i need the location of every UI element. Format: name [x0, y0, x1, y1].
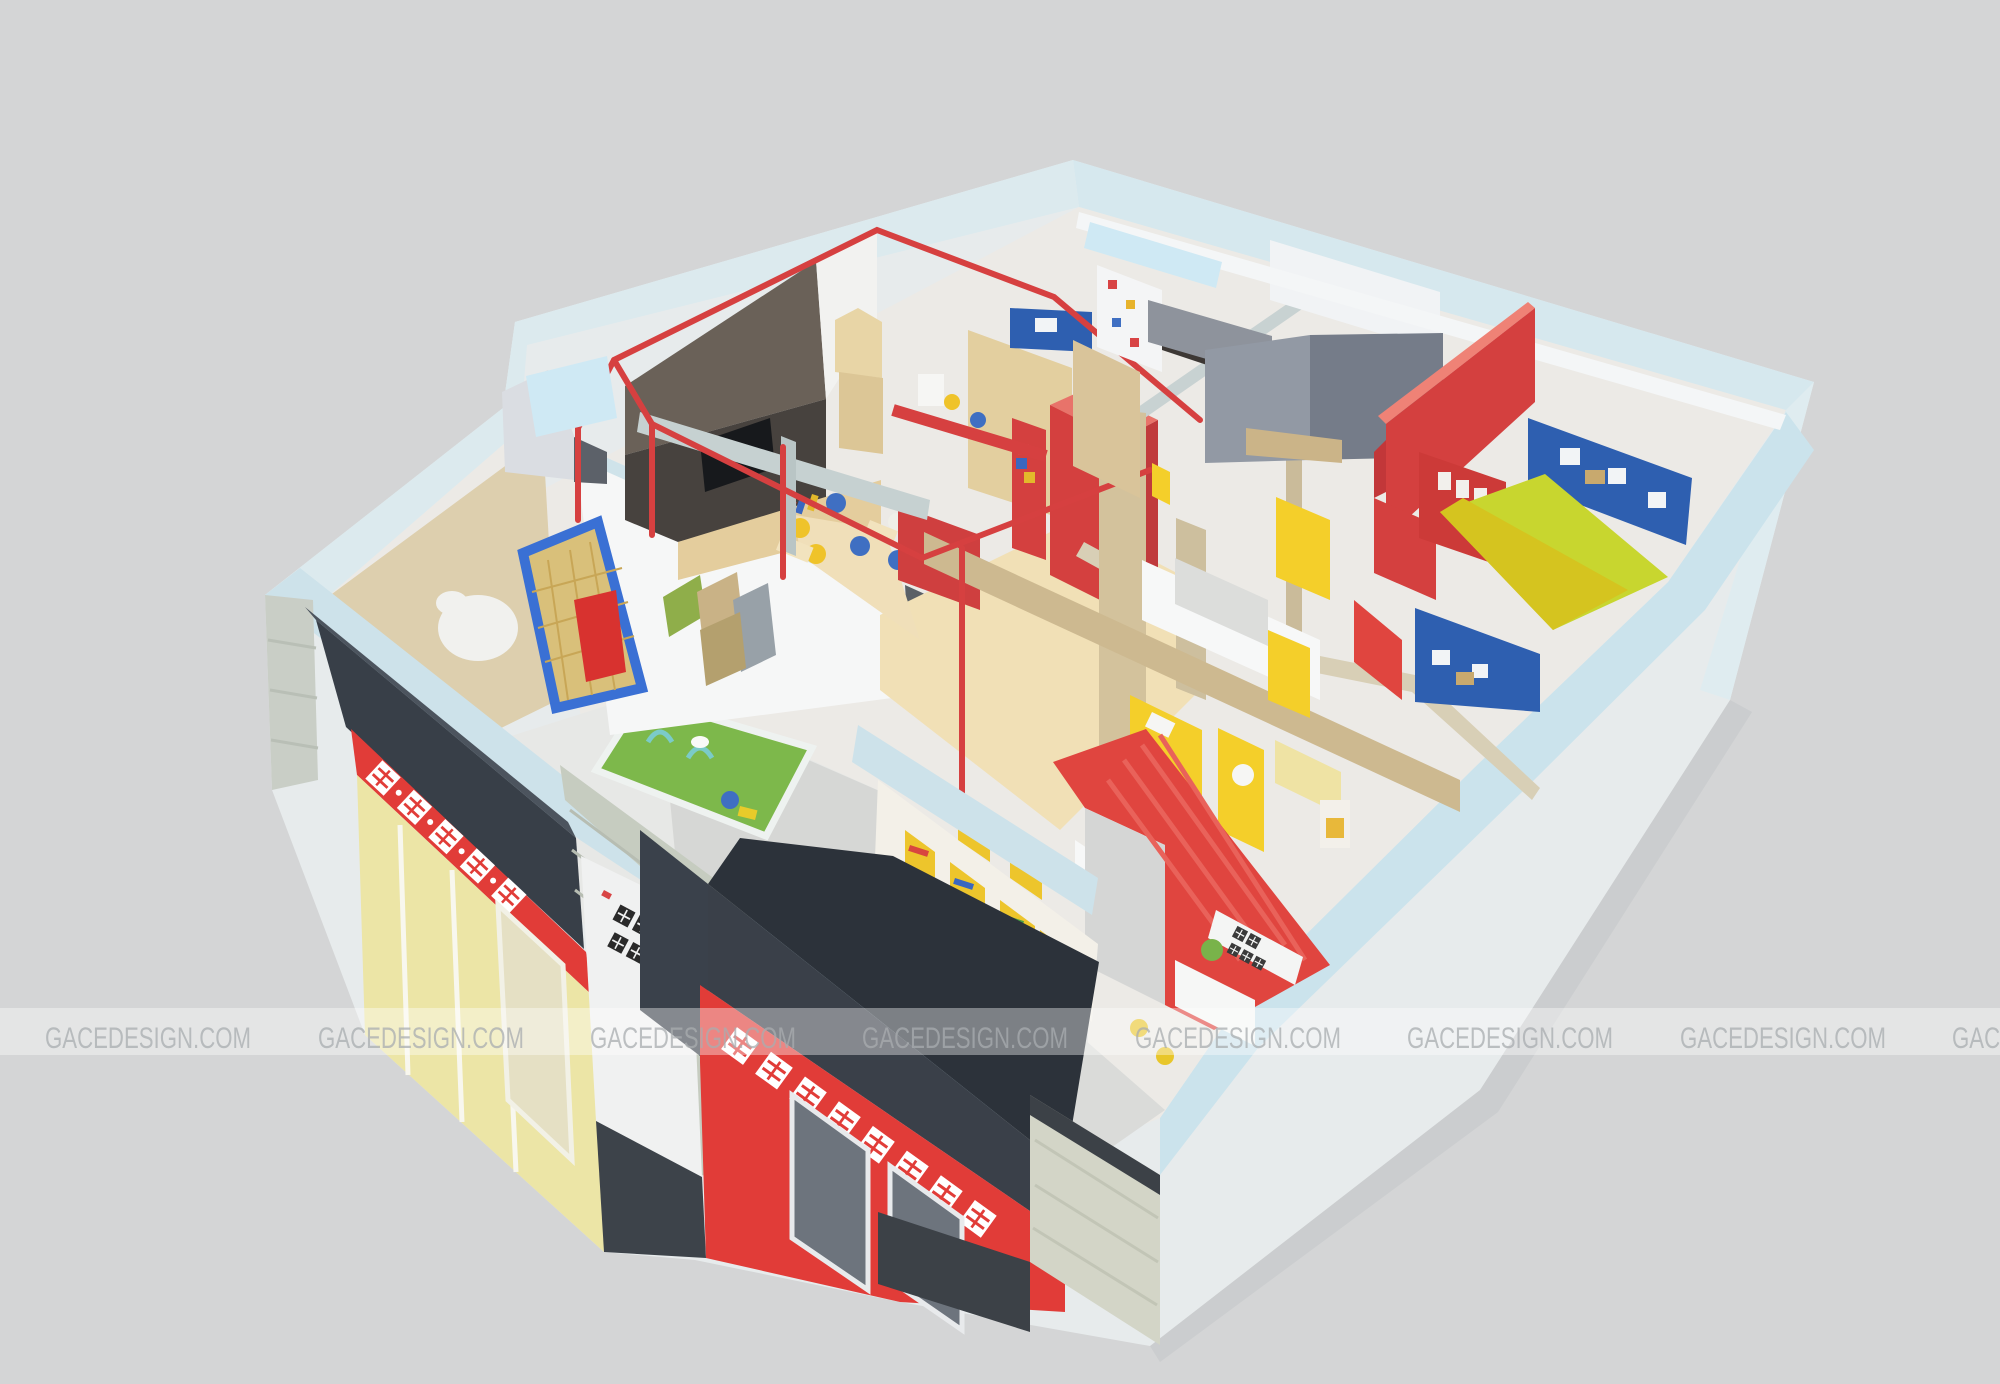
svg-text:GACEDESIGN.COM: GACEDESIGN.COM: [1680, 1022, 1886, 1055]
svg-text:GACEDESIGN.COM: GACEDESIGN.COM: [45, 1022, 251, 1055]
svg-text:GACEDESIGN.COM: GACEDESIGN.COM: [318, 1022, 524, 1055]
svg-text:GACEDESIGN.COM: GACEDESIGN.COM: [1407, 1022, 1613, 1055]
svg-text:GACEDESIGN.COM: GACEDESIGN.COM: [1135, 1022, 1341, 1055]
svg-text:GACEDESIGN.COM: GACEDESIGN.COM: [1952, 1022, 2000, 1055]
svg-text:GACEDESIGN.COM: GACEDESIGN.COM: [862, 1022, 1068, 1055]
svg-text:GACEDESIGN.COM: GACEDESIGN.COM: [590, 1022, 796, 1055]
